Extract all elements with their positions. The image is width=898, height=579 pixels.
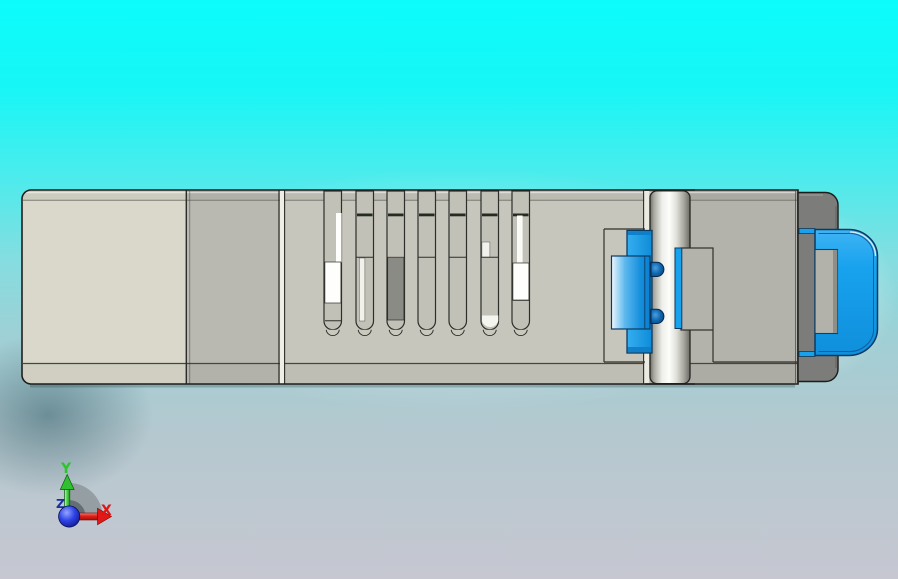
housing-panel-left[interactable] <box>22 190 186 384</box>
edge-highlight-strip <box>280 191 284 384</box>
latch-pin-top[interactable] <box>651 262 664 276</box>
bail-strip-top[interactable] <box>799 229 815 234</box>
contact-slot[interactable] <box>481 191 499 336</box>
contact-slot[interactable] <box>418 191 436 336</box>
x-axis-label: X <box>101 503 112 519</box>
y-axis-label: Y <box>60 461 72 477</box>
contact-pin[interactable] <box>517 216 523 263</box>
slot-shadow-line <box>482 214 498 217</box>
contact-slot[interactable] <box>356 191 374 336</box>
bail-hole-sidewall <box>833 250 837 333</box>
slot-shadow-line <box>357 214 373 217</box>
slot-shadow-line <box>419 214 435 217</box>
contact-pin[interactable] <box>482 242 490 257</box>
latch-plate-edge <box>628 232 652 236</box>
contact-slot[interactable] <box>387 191 405 336</box>
latch-bracket[interactable] <box>612 256 651 329</box>
origin-sphere-icon <box>59 506 80 527</box>
transceiver-module[interactable] <box>22 190 878 386</box>
housing-panel-mid[interactable] <box>186 190 279 384</box>
contact-slot[interactable] <box>324 191 342 336</box>
contact-pin[interactable] <box>388 257 404 320</box>
slot-shadow-line <box>388 214 404 217</box>
cad-viewport-background: Z Y X <box>0 0 898 579</box>
cad-viewport-canvas[interactable]: Z Y X <box>0 0 898 579</box>
latch-catch-block[interactable] <box>681 248 713 330</box>
contact-pin[interactable] <box>359 258 365 321</box>
contact-slot[interactable] <box>512 191 530 336</box>
bail-strip-bottom[interactable] <box>799 351 815 356</box>
contact-pin[interactable] <box>336 213 342 263</box>
slot-shadow-line <box>450 214 466 217</box>
latch-plate-right[interactable] <box>675 248 682 329</box>
contact-slot[interactable] <box>449 191 467 336</box>
latch-pin-bottom[interactable] <box>651 309 664 323</box>
contact-pin[interactable] <box>513 263 529 300</box>
latch-plate-edge <box>628 347 652 352</box>
contact-pin[interactable] <box>325 262 341 303</box>
orientation-triad: Z Y X <box>56 461 112 527</box>
